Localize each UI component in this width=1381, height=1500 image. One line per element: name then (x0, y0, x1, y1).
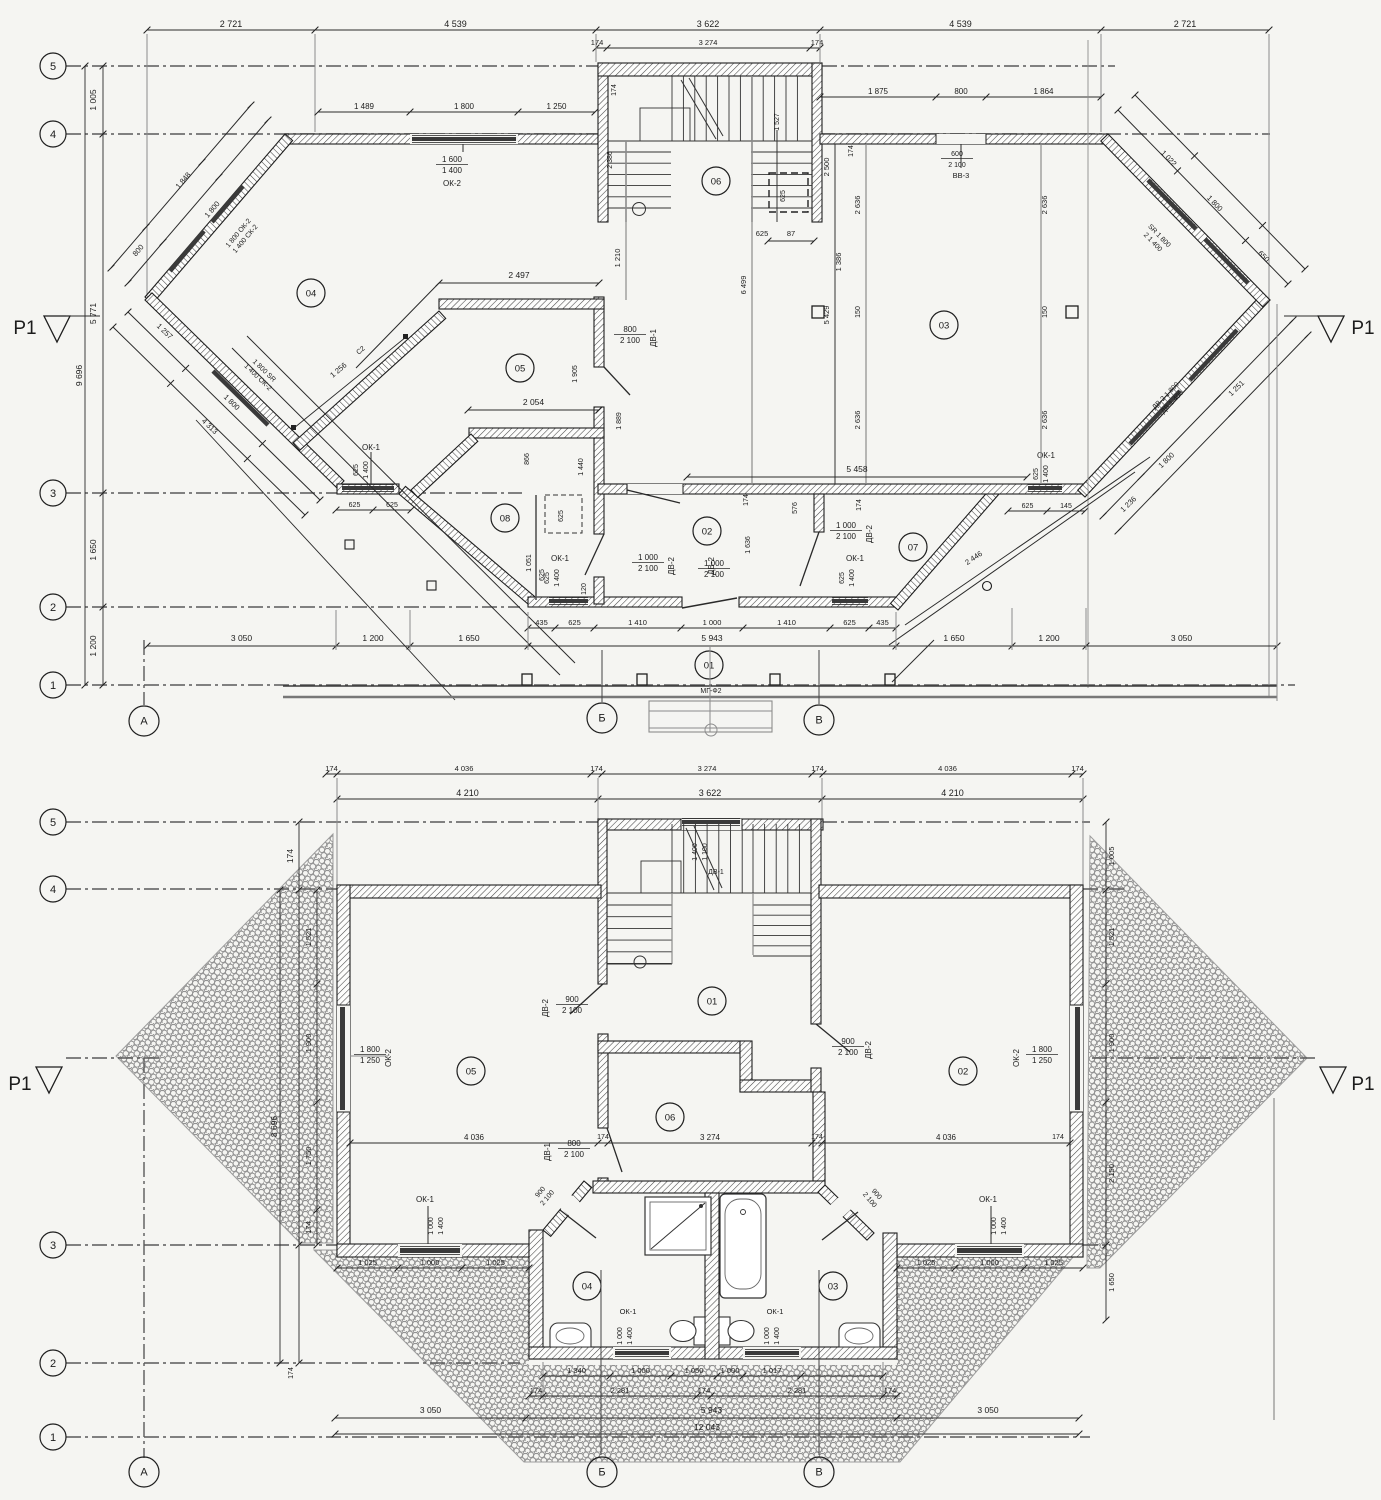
svg-text:145: 145 (1060, 503, 1072, 510)
svg-text:1 650: 1 650 (1107, 1273, 1116, 1292)
svg-text:1 889: 1 889 (616, 412, 623, 430)
svg-text:5 771: 5 771 (88, 303, 98, 325)
svg-text:1 000: 1 000 (631, 1366, 650, 1375)
svg-text:1 250: 1 250 (360, 1056, 381, 1065)
svg-text:ДВ-2: ДВ-2 (667, 557, 676, 575)
svg-text:P1: P1 (8, 1074, 31, 1095)
svg-text:1 000: 1 000 (836, 521, 857, 530)
svg-text:1 521: 1 521 (1107, 928, 1116, 947)
svg-text:1 025: 1 025 (1044, 1258, 1063, 1267)
svg-text:87: 87 (787, 229, 795, 238)
svg-text:625: 625 (839, 572, 846, 584)
svg-text:2 100: 2 100 (638, 564, 659, 573)
svg-text:1 400: 1 400 (363, 461, 370, 479)
svg-text:800: 800 (567, 1139, 581, 1148)
svg-text:2 281: 2 281 (611, 1386, 630, 1395)
svg-text:02: 02 (958, 1067, 969, 1078)
svg-text:5: 5 (50, 817, 56, 829)
svg-text:ОК-2: ОК-2 (443, 179, 462, 188)
svg-text:2 636: 2 636 (1040, 196, 1049, 215)
svg-text:А: А (140, 1467, 148, 1479)
svg-text:1 000: 1 000 (764, 1327, 771, 1345)
svg-text:В: В (815, 715, 822, 727)
svg-text:1 900: 1 900 (1107, 1034, 1116, 1053)
svg-text:1 000: 1 000 (617, 1327, 624, 1345)
svg-text:04: 04 (306, 289, 317, 300)
svg-text:800: 800 (623, 325, 637, 334)
svg-text:625: 625 (349, 502, 361, 509)
svg-text:1 025: 1 025 (358, 1258, 377, 1267)
svg-text:1 250: 1 250 (1032, 1056, 1053, 1065)
svg-text:1 025: 1 025 (486, 1258, 505, 1267)
svg-text:1 521: 1 521 (304, 928, 313, 947)
svg-text:625: 625 (558, 510, 565, 522)
svg-text:1 650: 1 650 (458, 633, 480, 643)
svg-text:06: 06 (711, 177, 722, 188)
svg-text:2 386: 2 386 (607, 151, 614, 169)
svg-text:1 000: 1 000 (428, 1217, 435, 1235)
svg-text:2: 2 (50, 602, 56, 614)
svg-text:1 636: 1 636 (745, 536, 752, 554)
svg-text:ДВ-2: ДВ-2 (541, 999, 550, 1017)
svg-text:В: В (815, 1467, 822, 1479)
svg-text:2 100: 2 100 (620, 336, 641, 345)
svg-text:1 050: 1 050 (685, 1366, 704, 1375)
svg-text:2 100: 2 100 (838, 1048, 859, 1057)
svg-text:6 499: 6 499 (739, 276, 748, 295)
svg-text:174: 174 (856, 499, 863, 511)
svg-text:174: 174 (325, 764, 338, 773)
svg-text:1 017: 1 017 (763, 1366, 782, 1375)
svg-text:576: 576 (792, 502, 799, 514)
svg-text:1 800: 1 800 (1032, 1045, 1053, 1054)
svg-text:1 210: 1 210 (613, 249, 622, 268)
svg-text:625: 625 (539, 569, 546, 581)
svg-text:3 050: 3 050 (1171, 633, 1193, 643)
svg-text:3 050: 3 050 (231, 633, 253, 643)
svg-text:2 636: 2 636 (853, 196, 862, 215)
svg-text:ОК-1: ОК-1 (416, 1195, 435, 1204)
svg-text:1: 1 (50, 1432, 56, 1444)
svg-text:1 400: 1 400 (554, 569, 561, 587)
svg-text:174: 174 (591, 38, 604, 47)
svg-text:174: 174 (811, 1134, 823, 1141)
svg-text:5 943: 5 943 (701, 1405, 723, 1415)
svg-text:1 650: 1 650 (943, 633, 965, 643)
svg-text:Б: Б (598, 1467, 605, 1479)
svg-text:2 497: 2 497 (508, 270, 530, 280)
svg-text:3 622: 3 622 (697, 19, 720, 29)
svg-text:МГ-Ф2: МГ-Ф2 (700, 688, 721, 695)
svg-text:866: 866 (524, 453, 531, 465)
svg-text:1 000: 1 000 (638, 553, 659, 562)
svg-text:А: А (140, 716, 148, 728)
svg-text:174: 174 (698, 1386, 711, 1395)
svg-text:1: 1 (50, 680, 56, 692)
svg-text:2 150: 2 150 (1107, 1164, 1116, 1183)
svg-text:1 200: 1 200 (1038, 633, 1060, 643)
svg-text:2 100: 2 100 (564, 1150, 585, 1159)
svg-text:1 864: 1 864 (1033, 87, 1054, 96)
svg-text:120: 120 (581, 583, 588, 595)
svg-text:1 410: 1 410 (777, 618, 796, 627)
svg-text:08: 08 (500, 514, 511, 525)
svg-text:12 043: 12 043 (694, 1422, 720, 1432)
svg-text:5 943: 5 943 (701, 633, 723, 643)
svg-text:P1: P1 (1351, 1074, 1374, 1095)
svg-text:600: 600 (951, 151, 963, 158)
svg-text:150: 150 (855, 306, 862, 318)
svg-text:8 696: 8 696 (269, 1116, 279, 1138)
svg-text:4 539: 4 539 (949, 19, 972, 29)
svg-text:1 400: 1 400 (627, 1327, 634, 1345)
svg-text:ОК-1: ОК-1 (1037, 451, 1056, 460)
svg-text:1 000: 1 000 (991, 1217, 998, 1235)
svg-text:1 650: 1 650 (88, 539, 98, 561)
svg-text:174: 174 (848, 145, 855, 157)
svg-text:4 210: 4 210 (941, 788, 964, 798)
svg-text:800: 800 (954, 87, 968, 96)
svg-text:1 386: 1 386 (834, 253, 843, 272)
svg-text:625: 625 (568, 618, 581, 627)
svg-text:174: 174 (590, 764, 603, 773)
svg-text:4 210: 4 210 (456, 788, 479, 798)
svg-text:174: 174 (811, 38, 824, 47)
svg-text:07: 07 (908, 543, 919, 554)
svg-text:2 100: 2 100 (562, 1006, 583, 1015)
svg-text:05: 05 (515, 364, 526, 375)
svg-text:1 000: 1 000 (980, 1258, 999, 1267)
svg-text:625: 625 (1033, 468, 1040, 480)
svg-text:174: 174 (285, 849, 295, 863)
svg-text:1 900: 1 900 (304, 1034, 313, 1053)
svg-text:02: 02 (702, 527, 713, 538)
svg-text:625: 625 (780, 190, 787, 202)
svg-text:435: 435 (535, 618, 548, 627)
svg-text:ОК-2: ОК-2 (384, 1048, 393, 1067)
svg-text:1 000: 1 000 (721, 1366, 740, 1375)
svg-text:2 100: 2 100 (948, 162, 966, 169)
svg-text:2 100: 2 100 (836, 532, 857, 541)
svg-text:ВВ-3: ВВ-3 (953, 171, 970, 180)
svg-text:3 274: 3 274 (699, 38, 718, 47)
svg-text:1 025: 1 025 (917, 1258, 936, 1267)
svg-text:2 500: 2 500 (822, 158, 831, 177)
svg-text:4 036: 4 036 (938, 764, 957, 773)
svg-text:174: 174 (530, 1386, 543, 1395)
svg-text:3 050: 3 050 (420, 1405, 442, 1415)
svg-text:ОК-1: ОК-1 (620, 1307, 637, 1316)
svg-text:174: 174 (1071, 764, 1084, 773)
svg-text:ОК-1: ОК-1 (846, 554, 865, 563)
svg-text:1 400: 1 400 (442, 166, 463, 175)
svg-text:9 696: 9 696 (74, 365, 84, 387)
svg-text:1 440: 1 440 (578, 458, 585, 476)
svg-text:4 036: 4 036 (936, 1133, 957, 1142)
svg-text:1 005: 1 005 (1107, 847, 1116, 866)
svg-text:5 458: 5 458 (846, 464, 868, 474)
svg-text:1 400: 1 400 (774, 1327, 781, 1345)
svg-text:2: 2 (50, 1358, 56, 1370)
svg-text:03: 03 (828, 1282, 839, 1293)
svg-text:1 200: 1 200 (88, 635, 98, 657)
svg-text:1 410: 1 410 (628, 618, 647, 627)
svg-text:1 400: 1 400 (1043, 465, 1050, 483)
svg-text:174: 174 (811, 764, 824, 773)
svg-text:1 250: 1 250 (546, 102, 567, 111)
svg-text:1 000: 1 000 (421, 1258, 440, 1267)
svg-text:174: 174 (743, 494, 750, 506)
svg-text:2 636: 2 636 (1040, 411, 1049, 430)
svg-text:625: 625 (843, 618, 856, 627)
svg-text:1 400: 1 400 (438, 1217, 445, 1235)
svg-text:4 036: 4 036 (464, 1133, 485, 1142)
svg-text:174: 174 (597, 1134, 609, 1141)
svg-text:06: 06 (665, 1113, 676, 1124)
svg-text:1 905: 1 905 (572, 365, 579, 383)
svg-text:ДВ-1: ДВ-1 (649, 329, 658, 347)
svg-text:ОК-1: ОК-1 (551, 554, 570, 563)
svg-text:174: 174 (304, 1221, 313, 1234)
svg-text:3 274: 3 274 (698, 764, 717, 773)
svg-text:625: 625 (756, 229, 769, 238)
svg-text:1 200: 1 200 (362, 633, 384, 643)
svg-text:174: 174 (884, 1386, 897, 1395)
svg-text:435: 435 (876, 618, 889, 627)
svg-text:3: 3 (50, 1240, 56, 1252)
svg-text:05: 05 (466, 1067, 477, 1078)
svg-text:3 622: 3 622 (699, 788, 722, 798)
svg-text:2 636: 2 636 (853, 411, 862, 430)
svg-text:4 036: 4 036 (455, 764, 474, 773)
svg-text:ОК-2: ОК-2 (1012, 1048, 1021, 1067)
svg-text:1 489: 1 489 (354, 102, 375, 111)
svg-text:P1: P1 (13, 318, 36, 339)
svg-text:900: 900 (841, 1037, 855, 1046)
svg-text:ДВ-2: ДВ-2 (864, 1041, 873, 1059)
svg-text:ОК-1: ОК-1 (767, 1307, 784, 1316)
svg-text:1 051: 1 051 (526, 554, 533, 572)
svg-text:5: 5 (50, 61, 56, 73)
svg-text:4: 4 (50, 129, 56, 141)
svg-text:2 054: 2 054 (523, 397, 545, 407)
svg-text:1 750: 1 750 (304, 1147, 313, 1166)
svg-text:01: 01 (707, 997, 718, 1008)
svg-text:04: 04 (582, 1282, 593, 1293)
svg-text:Б: Б (598, 713, 605, 725)
svg-text:1 400: 1 400 (1001, 1217, 1008, 1235)
svg-text:P1: P1 (1351, 318, 1374, 339)
svg-text:150: 150 (1042, 306, 1049, 318)
svg-text:1 800: 1 800 (360, 1045, 381, 1054)
svg-text:1 600: 1 600 (442, 155, 463, 164)
svg-text:03: 03 (939, 321, 950, 332)
svg-text:174: 174 (611, 84, 618, 96)
svg-text:01: 01 (704, 661, 715, 672)
svg-text:1 340: 1 340 (567, 1366, 586, 1375)
svg-text:4: 4 (50, 884, 56, 896)
svg-text:1 000: 1 000 (703, 618, 722, 627)
svg-text:1 527: 1 527 (774, 113, 781, 131)
svg-text:1 005: 1 005 (88, 89, 98, 111)
svg-text:ОК-1: ОК-1 (979, 1195, 998, 1204)
svg-text:1 400: 1 400 (849, 569, 856, 587)
svg-text:5 429: 5 429 (822, 306, 831, 325)
svg-text:3: 3 (50, 488, 56, 500)
svg-text:2 281: 2 281 (788, 1386, 807, 1395)
svg-text:ДВ-2: ДВ-2 (865, 525, 874, 543)
svg-text:3 274: 3 274 (700, 1133, 721, 1142)
svg-text:900: 900 (565, 995, 579, 1004)
svg-text:1 800: 1 800 (454, 102, 475, 111)
svg-text:2 721: 2 721 (1174, 19, 1197, 29)
svg-text:174: 174 (1052, 1134, 1064, 1141)
svg-text:4 539: 4 539 (444, 19, 467, 29)
svg-text:2 721: 2 721 (220, 19, 243, 29)
svg-text:ДВ-2: ДВ-2 (707, 557, 716, 575)
svg-text:174: 174 (288, 1367, 295, 1379)
svg-text:ОК-1: ОК-1 (362, 443, 381, 452)
svg-text:1 875: 1 875 (868, 87, 889, 96)
svg-text:ДВ-1: ДВ-1 (543, 1143, 552, 1161)
svg-text:3 050: 3 050 (977, 1405, 999, 1415)
svg-text:625: 625 (1022, 503, 1034, 510)
